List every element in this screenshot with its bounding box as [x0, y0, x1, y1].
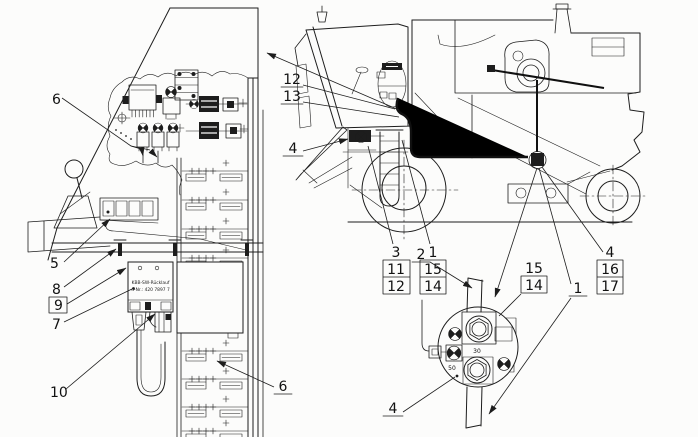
bolt [241, 240, 253, 256]
channel-step [182, 420, 248, 437]
exhaust-stack [553, 4, 571, 33]
svg-text:16: 16 [601, 262, 619, 278]
cab [295, 20, 412, 128]
rocker-switch-panel [100, 198, 158, 223]
callout-6-bottom: 6 [217, 361, 292, 395]
solenoid-detail-view: 30 50 [422, 278, 518, 428]
svg-text:12: 12 [283, 72, 301, 88]
channel-step [182, 189, 248, 210]
svg-text:12: 12 [387, 279, 405, 295]
callout-8: 8 [52, 249, 116, 298]
svg-text:8: 8 [52, 282, 61, 298]
svg-text:14: 14 [424, 279, 442, 295]
beacon-mast [317, 6, 327, 22]
svg-text:15: 15 [424, 262, 442, 278]
svg-text:1: 1 [429, 245, 438, 261]
fuse-block [175, 70, 198, 100]
svg-text:6: 6 [52, 92, 61, 108]
diagram-canvas: KBB-SW-Rücklauf d-Nr.: 420 7897 7 [0, 0, 698, 437]
relay-small-group [115, 123, 179, 163]
callout-stack-1-15-14: 1 15 14 [402, 140, 446, 295]
svg-text:7: 7 [52, 317, 61, 333]
svg-text:15: 15 [525, 261, 543, 277]
svg-text:3: 3 [392, 245, 401, 261]
svg-text:10: 10 [50, 385, 68, 401]
console-ledge [28, 217, 246, 252]
svg-text:6: 6 [279, 379, 288, 395]
channel-step [182, 218, 248, 239]
control-box-label-line1: KBB-SW-Rücklauf [132, 280, 170, 286]
svg-text:17: 17 [601, 279, 619, 295]
svg-text:11: 11 [387, 262, 405, 278]
svg-text:1: 1 [574, 281, 583, 297]
channel-step [182, 396, 248, 417]
callout-2: 2 [412, 247, 472, 288]
svg-text:9: 9 [54, 298, 63, 314]
callout-stack-4-16-17: 4 16 17 [597, 245, 623, 295]
callout-stack-15-14: 15 14 [499, 261, 547, 316]
callout-7: 7 [52, 287, 135, 333]
terminal-50-label: 50 [448, 365, 456, 372]
control-box-label-line2: d-Nr.: 420 7897 7 [131, 287, 170, 293]
cable-loop [137, 330, 165, 396]
reel-drive-motor [349, 130, 384, 143]
engine [505, 40, 549, 92]
svg-text:14: 14 [525, 278, 543, 294]
relay-small-upper [163, 87, 180, 119]
callout-4-header: 4 [283, 139, 348, 157]
control-box: KBB-SW-Rücklauf d-Nr.: 420 7897 7 [128, 262, 173, 312]
wiring-harness [397, 65, 604, 157]
svg-text:13: 13 [283, 89, 301, 105]
svg-text:4: 4 [606, 245, 615, 261]
rear-wheel [580, 165, 648, 228]
console-outline [48, 8, 263, 437]
svg-text:4: 4 [389, 401, 398, 417]
terminal-30-label: 30 [473, 348, 481, 355]
callout-4-bottom: 4 [383, 375, 458, 417]
svg-text:5: 5 [50, 256, 59, 272]
channel-connector-modules [176, 96, 248, 139]
junction-box [177, 262, 243, 338]
control-box-connectors [132, 312, 171, 332]
console-detail-view: KBB-SW-Rücklauf d-Nr.: 420 7897 7 [28, 8, 263, 437]
callout-5: 5 [50, 219, 110, 272]
callout-10: 10 [50, 314, 155, 401]
plus-terminal-symbol [114, 112, 130, 124]
bolt [169, 240, 181, 256]
svg-text:2: 2 [417, 247, 426, 263]
solenoid-sideview [529, 152, 546, 169]
harvester-side-view [295, 4, 648, 240]
solenoid-projection-lines [495, 167, 603, 297]
battery-cable-bottom [466, 387, 482, 428]
channel-step [182, 368, 248, 389]
svg-text:4: 4 [289, 141, 298, 157]
channel-step [182, 340, 248, 361]
scanned-diagram-page: KBB-SW-Rücklauf d-Nr.: 420 7897 7 [0, 0, 698, 437]
steering-wheel [356, 67, 368, 73]
bolt [114, 240, 126, 256]
channel-step [182, 160, 248, 181]
